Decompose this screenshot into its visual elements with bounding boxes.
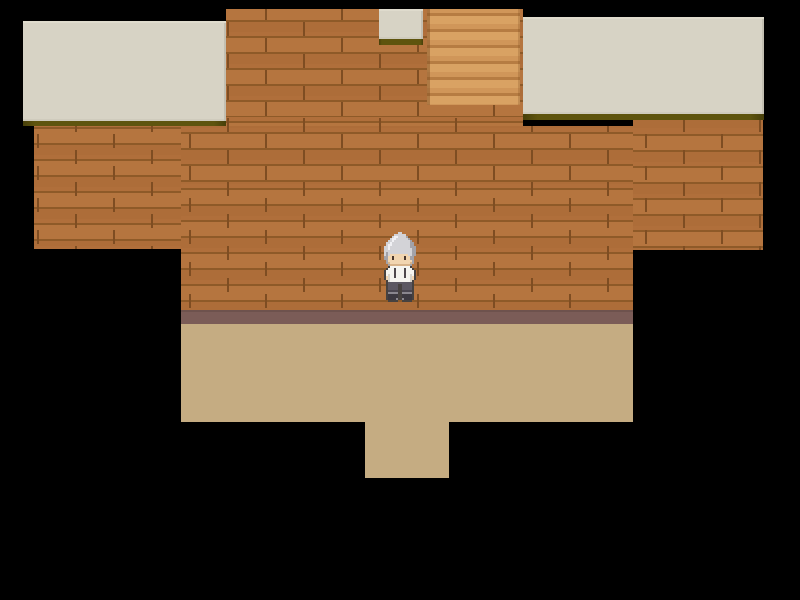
- character-pixel-art: [382, 232, 418, 302]
- character-sprite[interactable]: [382, 232, 418, 302]
- staircase[interactable]: [427, 9, 520, 105]
- ceiling-shadow-top-door: [379, 39, 423, 45]
- baseboard-strip: [181, 310, 633, 324]
- ceiling-shadow-left: [23, 121, 226, 126]
- floor-main[interactable]: [181, 324, 633, 422]
- floor-entry-south[interactable]: [365, 422, 449, 478]
- ceiling-shadow-right: [523, 114, 764, 120]
- ceiling-panel-top-door: [379, 9, 423, 39]
- ceiling-panel-right: [523, 17, 764, 114]
- wall-right-wing: [633, 120, 763, 250]
- game-viewport[interactable]: [0, 0, 800, 600]
- wall-left-wing: [34, 126, 181, 249]
- ceiling-panel-left: [23, 21, 226, 121]
